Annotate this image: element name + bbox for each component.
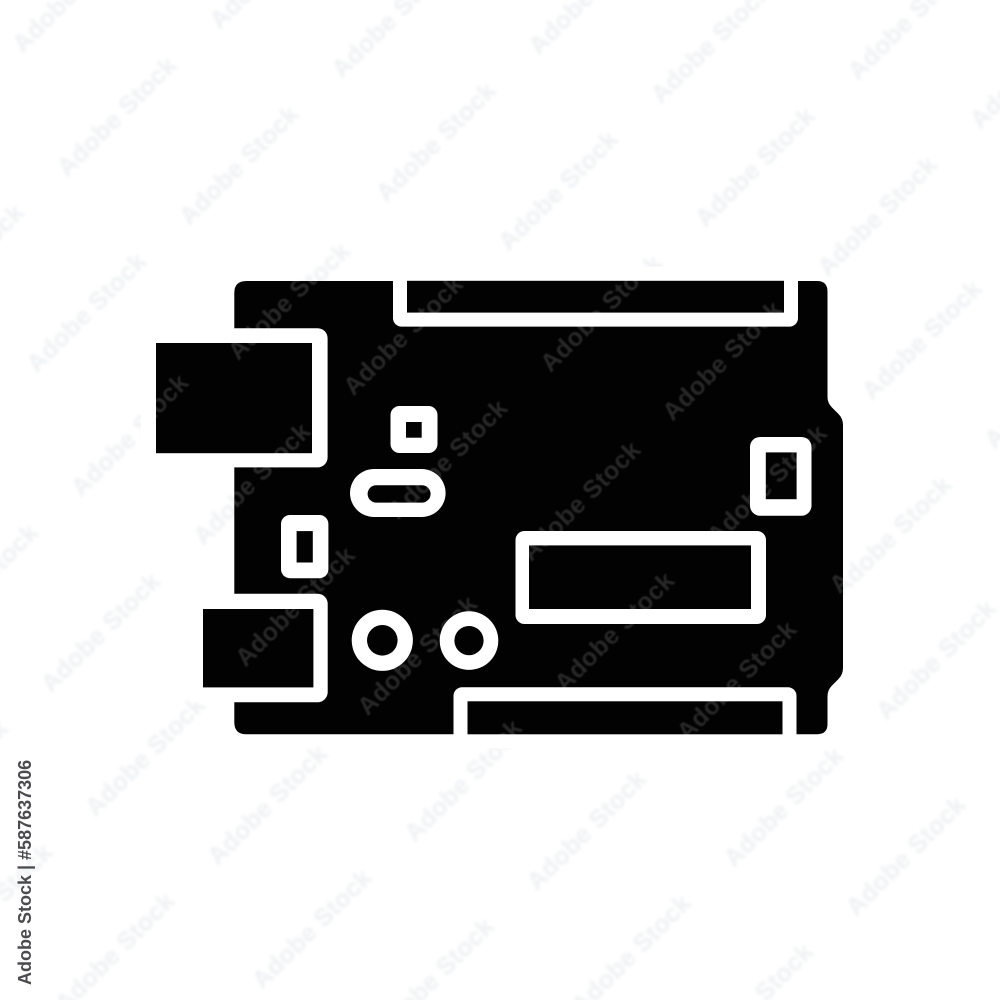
svg-text:Adobe Stock | #587637306: Adobe Stock | #587637306 <box>15 760 35 985</box>
